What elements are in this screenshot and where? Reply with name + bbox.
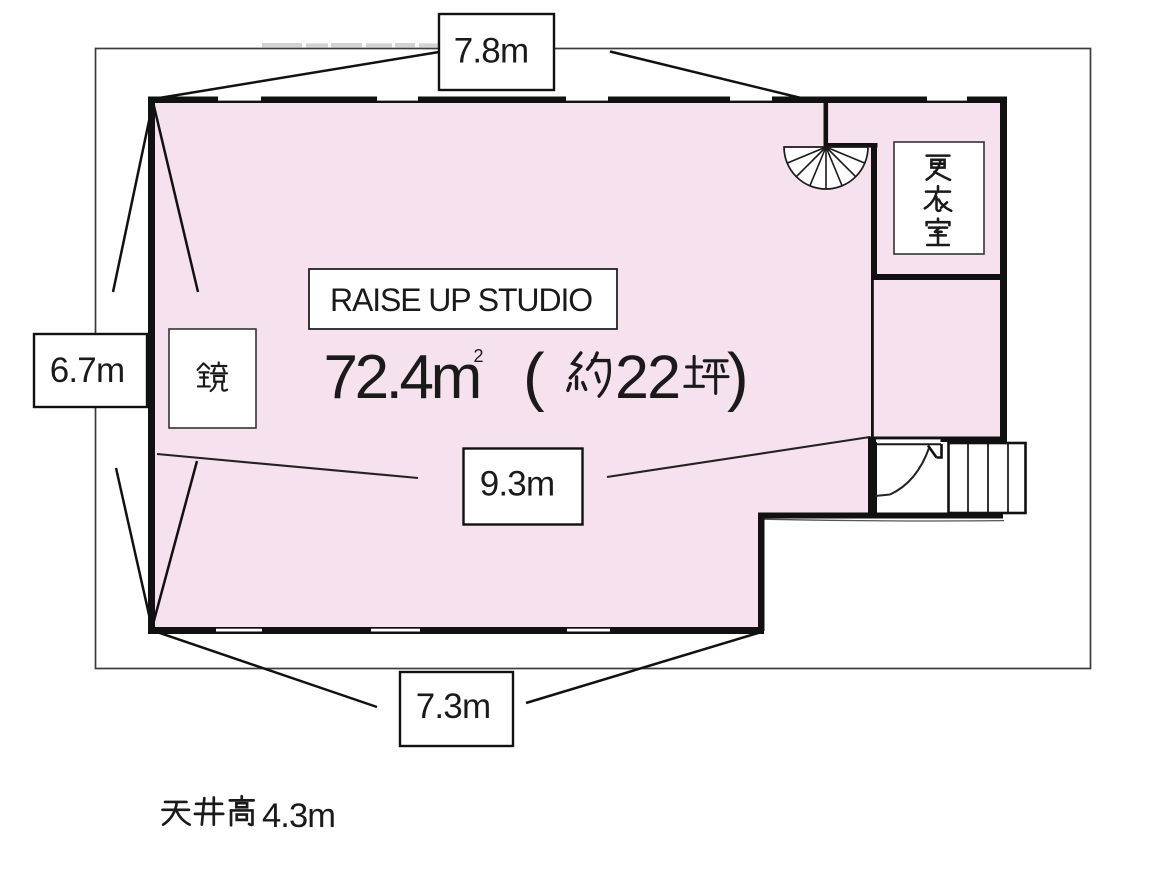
svg-text:2: 2 bbox=[474, 346, 484, 366]
svg-text:9.3m: 9.3m bbox=[480, 465, 555, 504]
svg-text:4.3m: 4.3m bbox=[262, 797, 335, 835]
svg-text:6.7m: 6.7m bbox=[50, 351, 125, 390]
svg-text:): ) bbox=[727, 340, 749, 413]
svg-text:72.4m: 72.4m bbox=[324, 343, 479, 412]
svg-text:7.8m: 7.8m bbox=[454, 32, 529, 71]
svg-text:RAISE UP STUDIO: RAISE UP STUDIO bbox=[330, 282, 592, 318]
svg-text:7.3m: 7.3m bbox=[416, 687, 491, 726]
svg-text:(: ( bbox=[523, 340, 545, 413]
svg-text:22: 22 bbox=[615, 343, 679, 411]
